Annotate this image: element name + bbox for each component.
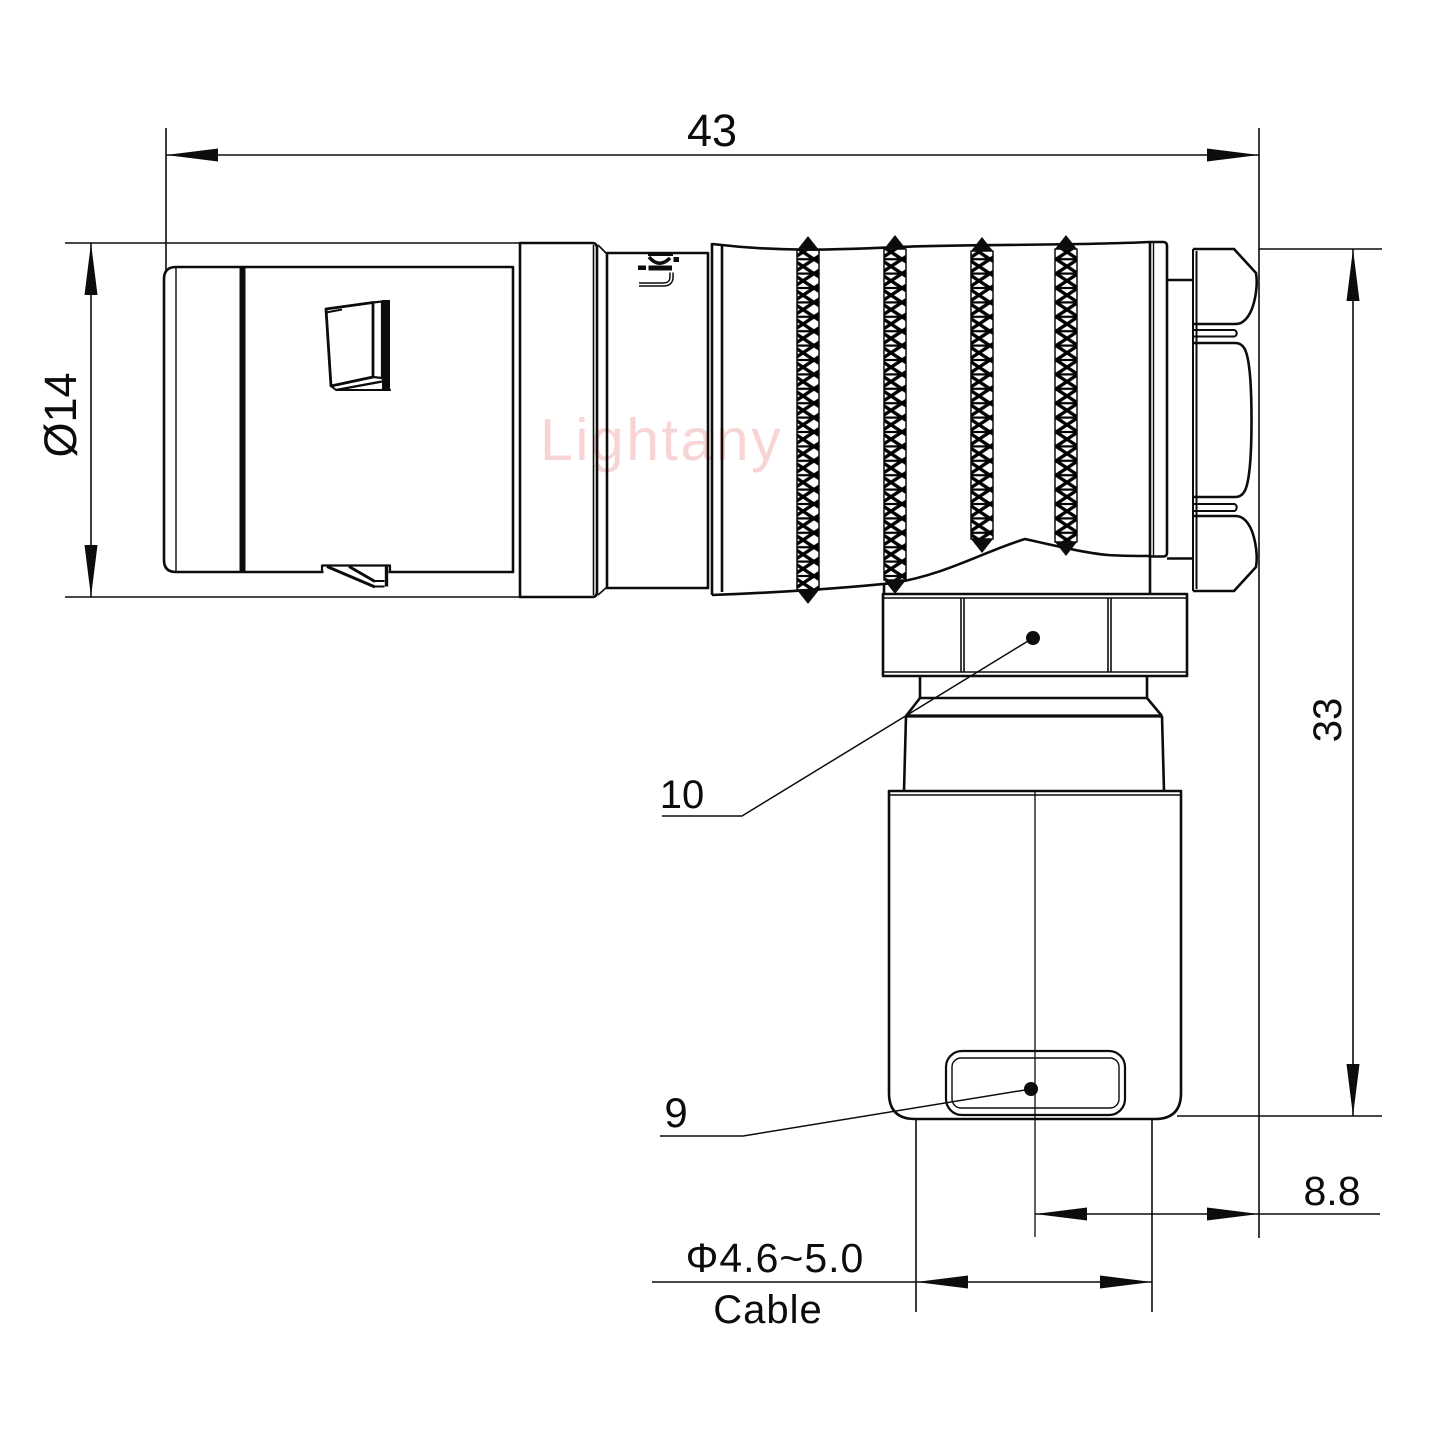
svg-text:33: 33: [1306, 698, 1350, 743]
svg-text:Cable: Cable: [713, 1288, 823, 1332]
svg-text:Lightany: Lightany: [540, 407, 783, 473]
svg-text:10: 10: [660, 773, 705, 817]
svg-text:Ø14: Ø14: [35, 372, 86, 457]
svg-text:43: 43: [687, 105, 737, 156]
svg-text:Φ4.6~5.0: Φ4.6~5.0: [686, 1235, 865, 1281]
svg-text:9: 9: [664, 1089, 687, 1136]
svg-text:8.8: 8.8: [1304, 1168, 1361, 1214]
